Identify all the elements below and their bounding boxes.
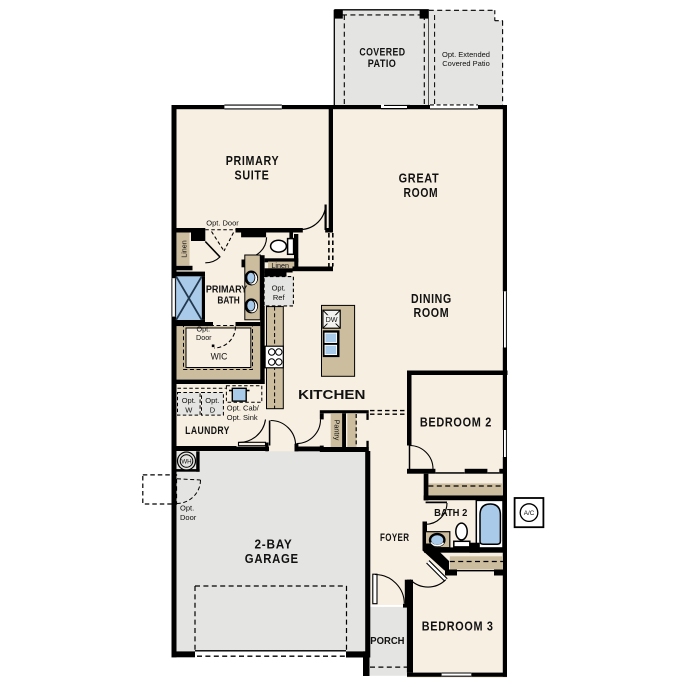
svg-text:A/C: A/C bbox=[524, 510, 535, 517]
svg-text:SUITE: SUITE bbox=[235, 167, 270, 182]
svg-text:Opt.: Opt. bbox=[205, 396, 219, 405]
svg-text:PATIO: PATIO bbox=[368, 58, 397, 70]
svg-text:Opt.: Opt. bbox=[182, 396, 196, 405]
svg-text:DW: DW bbox=[326, 315, 338, 324]
svg-text:LAUNDRY: LAUNDRY bbox=[185, 425, 230, 437]
svg-text:COVERED: COVERED bbox=[359, 46, 405, 58]
svg-text:DINING: DINING bbox=[411, 291, 452, 306]
svg-text:Opt.: Opt. bbox=[180, 504, 194, 513]
svg-text:ROOM: ROOM bbox=[413, 305, 449, 320]
svg-text:D: D bbox=[210, 406, 216, 415]
svg-text:Linen: Linen bbox=[180, 240, 189, 258]
svg-text:Opt. Extended: Opt. Extended bbox=[442, 50, 490, 59]
svg-text:FOYER: FOYER bbox=[380, 532, 409, 544]
svg-text:WH: WH bbox=[181, 458, 191, 465]
svg-text:Opt. Sink: Opt. Sink bbox=[227, 413, 258, 422]
svg-text:BATH: BATH bbox=[217, 295, 239, 306]
svg-text:PRIMARY: PRIMARY bbox=[226, 153, 280, 168]
svg-text:Opt. Cab/: Opt. Cab/ bbox=[227, 404, 260, 413]
svg-text:ROOM: ROOM bbox=[404, 185, 439, 200]
svg-text:GREAT: GREAT bbox=[399, 171, 440, 186]
svg-text:GARAGE: GARAGE bbox=[245, 551, 299, 566]
svg-text:WIC: WIC bbox=[211, 351, 228, 361]
svg-text:PORCH: PORCH bbox=[370, 635, 404, 647]
svg-text:KITCHEN: KITCHEN bbox=[298, 387, 365, 402]
svg-text:BEDROOM 3: BEDROOM 3 bbox=[422, 619, 494, 634]
svg-text:PRIMARY: PRIMARY bbox=[206, 285, 248, 296]
svg-text:Door: Door bbox=[196, 333, 212, 342]
svg-text:2-BAY: 2-BAY bbox=[255, 537, 293, 552]
svg-text:Covered Patio: Covered Patio bbox=[442, 59, 490, 68]
svg-text:BEDROOM 2: BEDROOM 2 bbox=[420, 414, 492, 429]
svg-text:Door: Door bbox=[180, 513, 197, 522]
svg-text:W: W bbox=[185, 406, 193, 415]
svg-text:Pantry: Pantry bbox=[332, 420, 341, 441]
svg-text:BATH 2: BATH 2 bbox=[434, 508, 468, 519]
svg-text:Ref: Ref bbox=[273, 293, 286, 302]
svg-text:Opt.: Opt. bbox=[272, 284, 286, 293]
svg-text:Opt. Door: Opt. Door bbox=[206, 219, 239, 228]
